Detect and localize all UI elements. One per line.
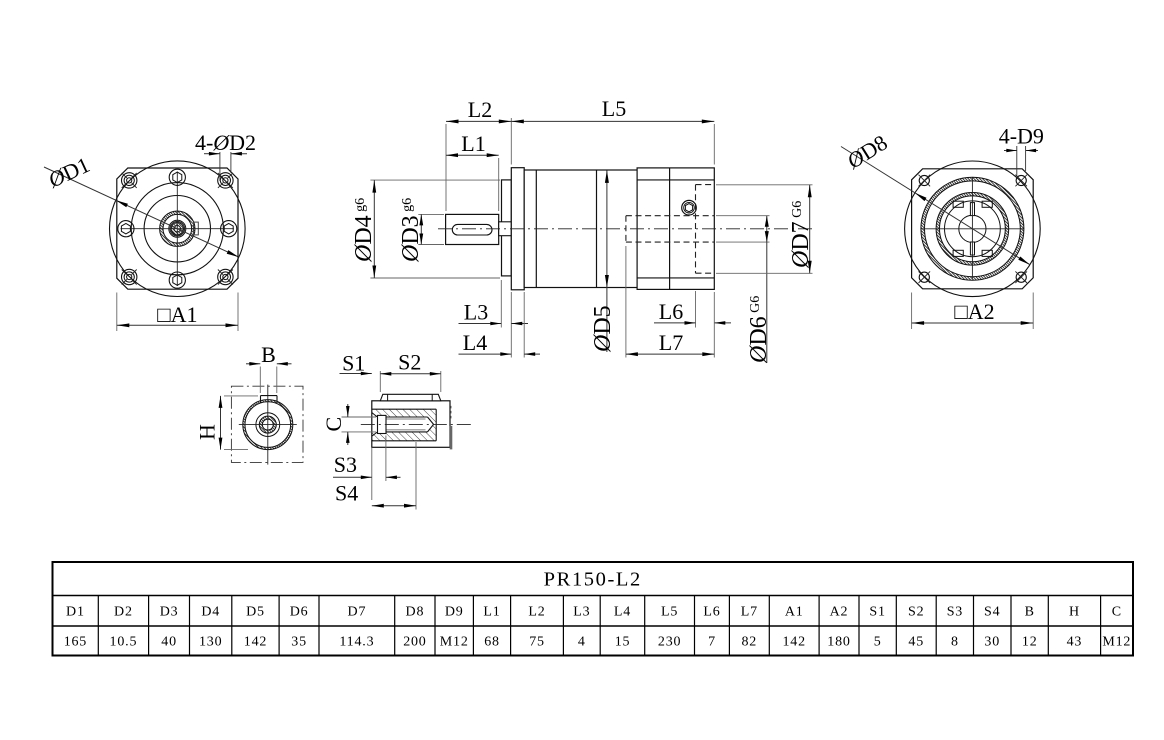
svg-text:30: 30 xyxy=(984,635,1000,650)
svg-text:165: 165 xyxy=(64,635,87,650)
svg-text:□A2: □A2 xyxy=(954,299,994,324)
svg-text:5: 5 xyxy=(874,635,882,650)
svg-text:L1: L1 xyxy=(461,131,485,156)
svg-text:L2: L2 xyxy=(528,605,545,620)
svg-text:D1: D1 xyxy=(66,605,85,620)
svg-text:ØD3 g6: ØD3 g6 xyxy=(398,198,424,263)
svg-text:35: 35 xyxy=(291,635,307,650)
svg-text:4-ØD2: 4-ØD2 xyxy=(195,130,256,155)
svg-text:10.5: 10.5 xyxy=(110,635,138,650)
svg-text:A1: A1 xyxy=(785,605,804,620)
svg-text:A2: A2 xyxy=(830,605,849,620)
svg-text:L2: L2 xyxy=(468,97,492,122)
svg-text:L1: L1 xyxy=(483,605,500,620)
svg-text:S2: S2 xyxy=(398,350,421,375)
svg-text:S4: S4 xyxy=(335,481,358,506)
svg-text:PR150-L2: PR150-L2 xyxy=(544,569,642,591)
svg-text:L5: L5 xyxy=(602,96,626,121)
svg-text:S3: S3 xyxy=(947,605,963,620)
svg-text:142: 142 xyxy=(244,635,267,650)
svg-text:ØD8: ØD8 xyxy=(841,130,891,174)
svg-text:D3: D3 xyxy=(160,605,179,620)
svg-text:200: 200 xyxy=(403,635,426,650)
svg-text:D6: D6 xyxy=(290,605,309,620)
svg-text:12: 12 xyxy=(1022,635,1038,650)
svg-text:H: H xyxy=(195,424,220,440)
svg-text:S4: S4 xyxy=(984,605,1000,620)
svg-text:4: 4 xyxy=(578,635,586,650)
svg-text:130: 130 xyxy=(199,635,222,650)
svg-text:L6: L6 xyxy=(703,605,720,620)
svg-text:L6: L6 xyxy=(659,299,683,324)
svg-text:M12: M12 xyxy=(1102,635,1131,650)
svg-text:□A1: □A1 xyxy=(157,302,197,327)
svg-text:D2: D2 xyxy=(114,605,133,620)
svg-text:C: C xyxy=(1112,605,1122,620)
svg-text:43: 43 xyxy=(1067,635,1083,650)
svg-text:L3: L3 xyxy=(464,300,488,325)
svg-text:ØD6 G6: ØD6 G6 xyxy=(746,296,772,364)
svg-text:15: 15 xyxy=(615,635,631,650)
svg-text:82: 82 xyxy=(741,635,757,650)
svg-text:68: 68 xyxy=(484,635,500,650)
svg-text:S1: S1 xyxy=(342,351,365,376)
svg-text:L4: L4 xyxy=(614,605,631,620)
svg-text:S3: S3 xyxy=(334,452,357,477)
svg-text:D8: D8 xyxy=(406,605,425,620)
svg-text:230: 230 xyxy=(658,635,681,650)
svg-text:L7: L7 xyxy=(741,605,758,620)
svg-text:D4: D4 xyxy=(201,605,220,620)
svg-text:D9: D9 xyxy=(445,605,464,620)
svg-text:B: B xyxy=(261,342,276,367)
svg-text:4-D9: 4-D9 xyxy=(999,124,1044,149)
svg-text:L5: L5 xyxy=(661,605,678,620)
svg-text:S1: S1 xyxy=(869,605,885,620)
svg-text:45: 45 xyxy=(908,635,924,650)
svg-text:H: H xyxy=(1069,605,1080,620)
svg-text:75: 75 xyxy=(529,635,545,650)
svg-text:D7: D7 xyxy=(348,605,367,620)
svg-text:M12: M12 xyxy=(440,635,469,650)
svg-text:8: 8 xyxy=(951,635,959,650)
svg-text:L4: L4 xyxy=(463,330,487,355)
svg-text:D5: D5 xyxy=(246,605,265,620)
svg-text:L7: L7 xyxy=(659,330,683,355)
svg-text:B: B xyxy=(1025,605,1035,620)
svg-text:180: 180 xyxy=(827,635,850,650)
svg-text:S2: S2 xyxy=(908,605,924,620)
svg-text:114.3: 114.3 xyxy=(339,635,374,650)
svg-text:C: C xyxy=(321,417,346,432)
svg-text:142: 142 xyxy=(782,635,805,650)
svg-text:L3: L3 xyxy=(573,605,590,620)
svg-text:ØD4 g6: ØD4 g6 xyxy=(351,198,377,263)
svg-text:7: 7 xyxy=(708,635,716,650)
svg-text:ØD5: ØD5 xyxy=(590,305,616,353)
svg-text:40: 40 xyxy=(161,635,177,650)
